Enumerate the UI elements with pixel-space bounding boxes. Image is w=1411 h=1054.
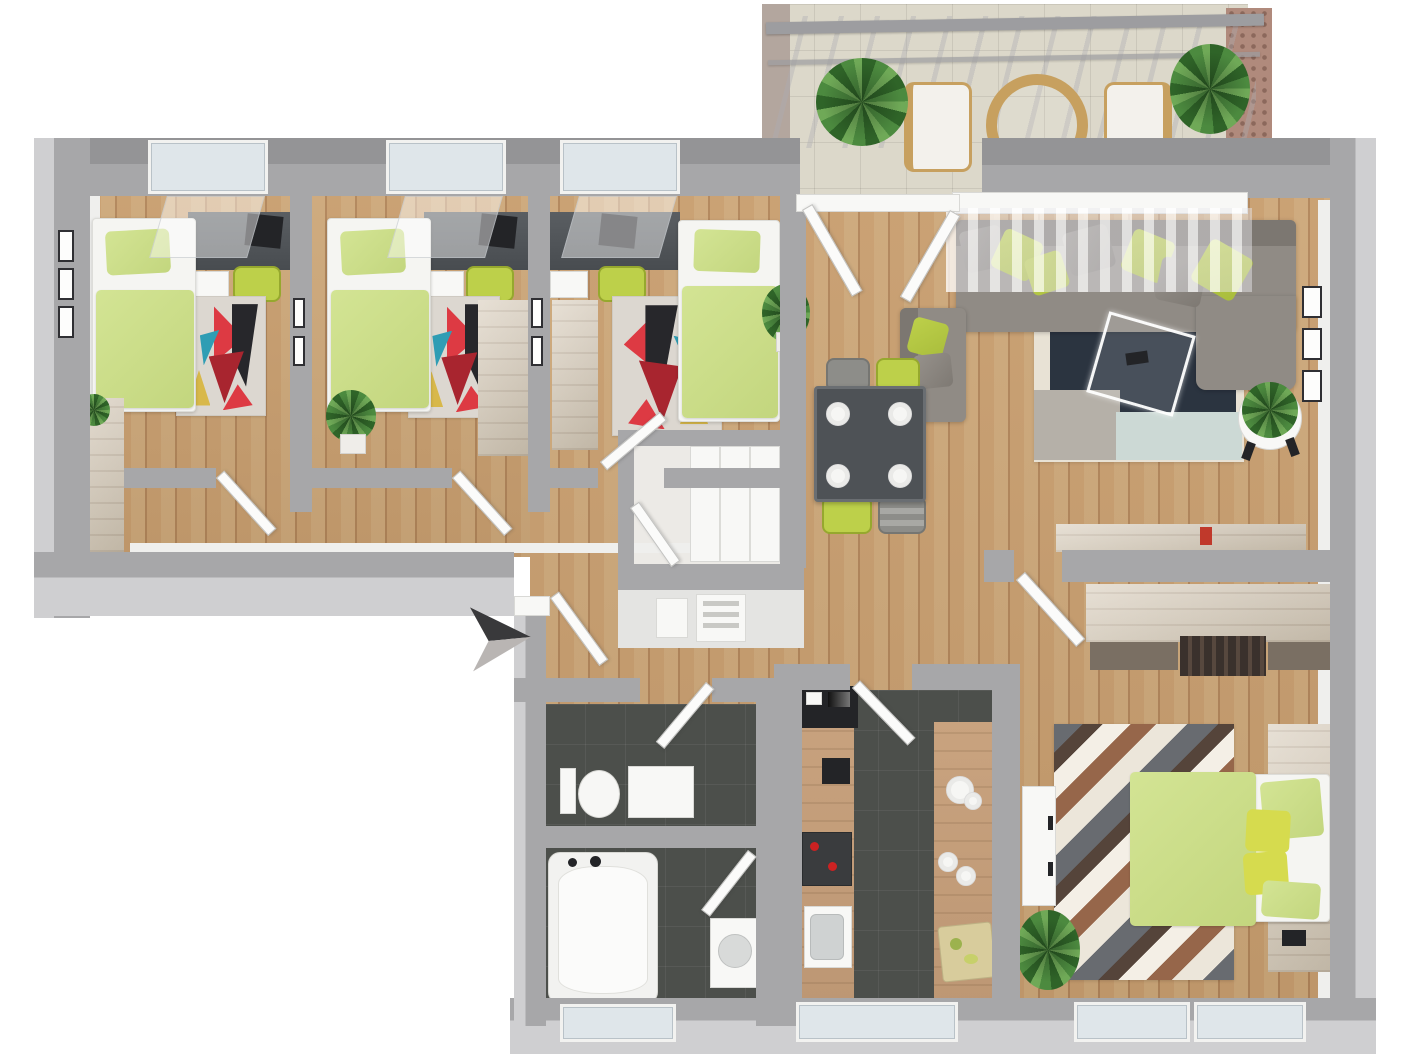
cutting-board-food-2 <box>964 954 978 964</box>
pillow-master-yellow-1 <box>1245 809 1291 853</box>
plate-2 <box>888 402 912 426</box>
toilet-tank <box>560 768 576 814</box>
window-kitchen <box>796 1002 958 1042</box>
rug-living-blue-patch <box>1116 412 1242 460</box>
dresser-master <box>1022 786 1056 906</box>
balcony-door-threshold <box>796 194 960 212</box>
wall-master-north <box>1062 550 1346 582</box>
stove <box>802 832 852 886</box>
wardrobe-bedroom-2 <box>478 300 528 456</box>
balcony-chair-left <box>904 82 972 172</box>
curtains-living-room <box>946 208 1252 292</box>
appliance-button-panel <box>806 692 822 705</box>
wall-bedroom-3-south-left <box>550 468 598 488</box>
stove-burner-1 <box>810 842 819 851</box>
window-glare-bedroom-3 <box>561 196 677 258</box>
wall-spine <box>780 194 806 568</box>
wall-storage-south <box>618 564 804 590</box>
window-glare-bedroom-1 <box>149 196 265 258</box>
wall-bedroom-3-south-right <box>664 468 780 488</box>
plate-3 <box>826 464 850 488</box>
kitchen-plate-3 <box>938 852 958 872</box>
wall-art-living-room <box>1302 286 1324 406</box>
sofa-chaise <box>1196 296 1296 390</box>
bathtub-faucet-2 <box>590 856 601 867</box>
window-bathroom <box>560 1004 676 1042</box>
sink-bowl <box>810 914 844 960</box>
floor-plan-canvas <box>0 0 1411 1054</box>
balcony-plant-right <box>1170 44 1250 134</box>
wall-art-bedroom-2 <box>293 298 305 368</box>
duvet-master <box>1130 772 1256 926</box>
wardrobe-bedroom-3 <box>552 300 598 450</box>
plate-1 <box>826 402 850 426</box>
wall-art-bedroom-3 <box>531 298 543 368</box>
entrance-arrow <box>470 606 532 672</box>
utility-panel-small <box>656 598 688 638</box>
appliance-display <box>828 692 850 707</box>
utility-panel-large <box>696 594 746 642</box>
balcony-plant-left <box>816 58 908 146</box>
wall-bedroom-1-south <box>124 468 216 488</box>
bathtub-faucet-1 <box>568 858 577 867</box>
rug-living-gray-patch <box>1034 390 1120 460</box>
washbasin-bowl <box>718 934 752 968</box>
wall-master-north-stub <box>984 550 1014 582</box>
bathtub-inner <box>558 866 648 994</box>
window-master-2 <box>1194 1002 1306 1042</box>
plant-living-stool <box>1242 382 1298 438</box>
coffee-machine <box>822 758 850 784</box>
wall-west <box>34 138 90 618</box>
wall-south-left-wing <box>34 552 514 616</box>
wall-north-right-wing <box>982 138 1376 198</box>
window-glare-bedroom-2 <box>387 196 503 258</box>
plate-4 <box>888 464 912 488</box>
kitchen-plate-4 <box>956 866 976 886</box>
sideboard-red-item <box>1200 527 1212 545</box>
wall-east <box>1330 138 1376 1050</box>
duvet-bedroom-1 <box>96 290 194 408</box>
window-master-1 <box>1074 1002 1190 1042</box>
wc-cabinet <box>628 766 694 818</box>
cutting-board <box>937 921 997 982</box>
toilet <box>578 770 620 818</box>
window-bedroom-2 <box>386 140 506 194</box>
wall-bedroom-2-south <box>312 468 452 488</box>
plant-master-bedroom <box>1016 910 1080 990</box>
bed-master-remote <box>1282 930 1306 946</box>
wall-wc-bath-divider <box>546 826 758 848</box>
sideboard <box>1056 524 1306 552</box>
window-bedroom-3 <box>560 140 680 194</box>
plant-pot-bedroom-2 <box>340 434 366 454</box>
wall-art-bedroom-1 <box>58 230 74 342</box>
wall-bath-block-west <box>514 612 546 1026</box>
stove-burner-2 <box>828 862 837 871</box>
window-bedroom-1 <box>148 140 268 194</box>
wall-kitchen-master-divider <box>992 664 1020 1000</box>
wardrobe-storage <box>690 446 780 562</box>
dresser-handle-2 <box>1048 862 1053 876</box>
cutting-board-food-1 <box>950 938 962 950</box>
wardrobe-master-front-left <box>1090 642 1178 670</box>
wardrobe-master-open-shelves <box>1180 636 1266 676</box>
wall-wc-north-right <box>712 678 762 702</box>
pillow-bedroom-3 <box>693 229 760 273</box>
drawer-unit-bedroom-3 <box>550 271 588 298</box>
dresser-handle-1 <box>1048 816 1053 830</box>
pillow-master-green-2 <box>1261 880 1321 920</box>
kitchen-plate-2 <box>964 792 982 810</box>
wardrobe-master <box>1086 584 1346 642</box>
wall-wc-north-left <box>514 678 640 702</box>
wall-bath-kitchen-divider <box>756 678 802 1026</box>
